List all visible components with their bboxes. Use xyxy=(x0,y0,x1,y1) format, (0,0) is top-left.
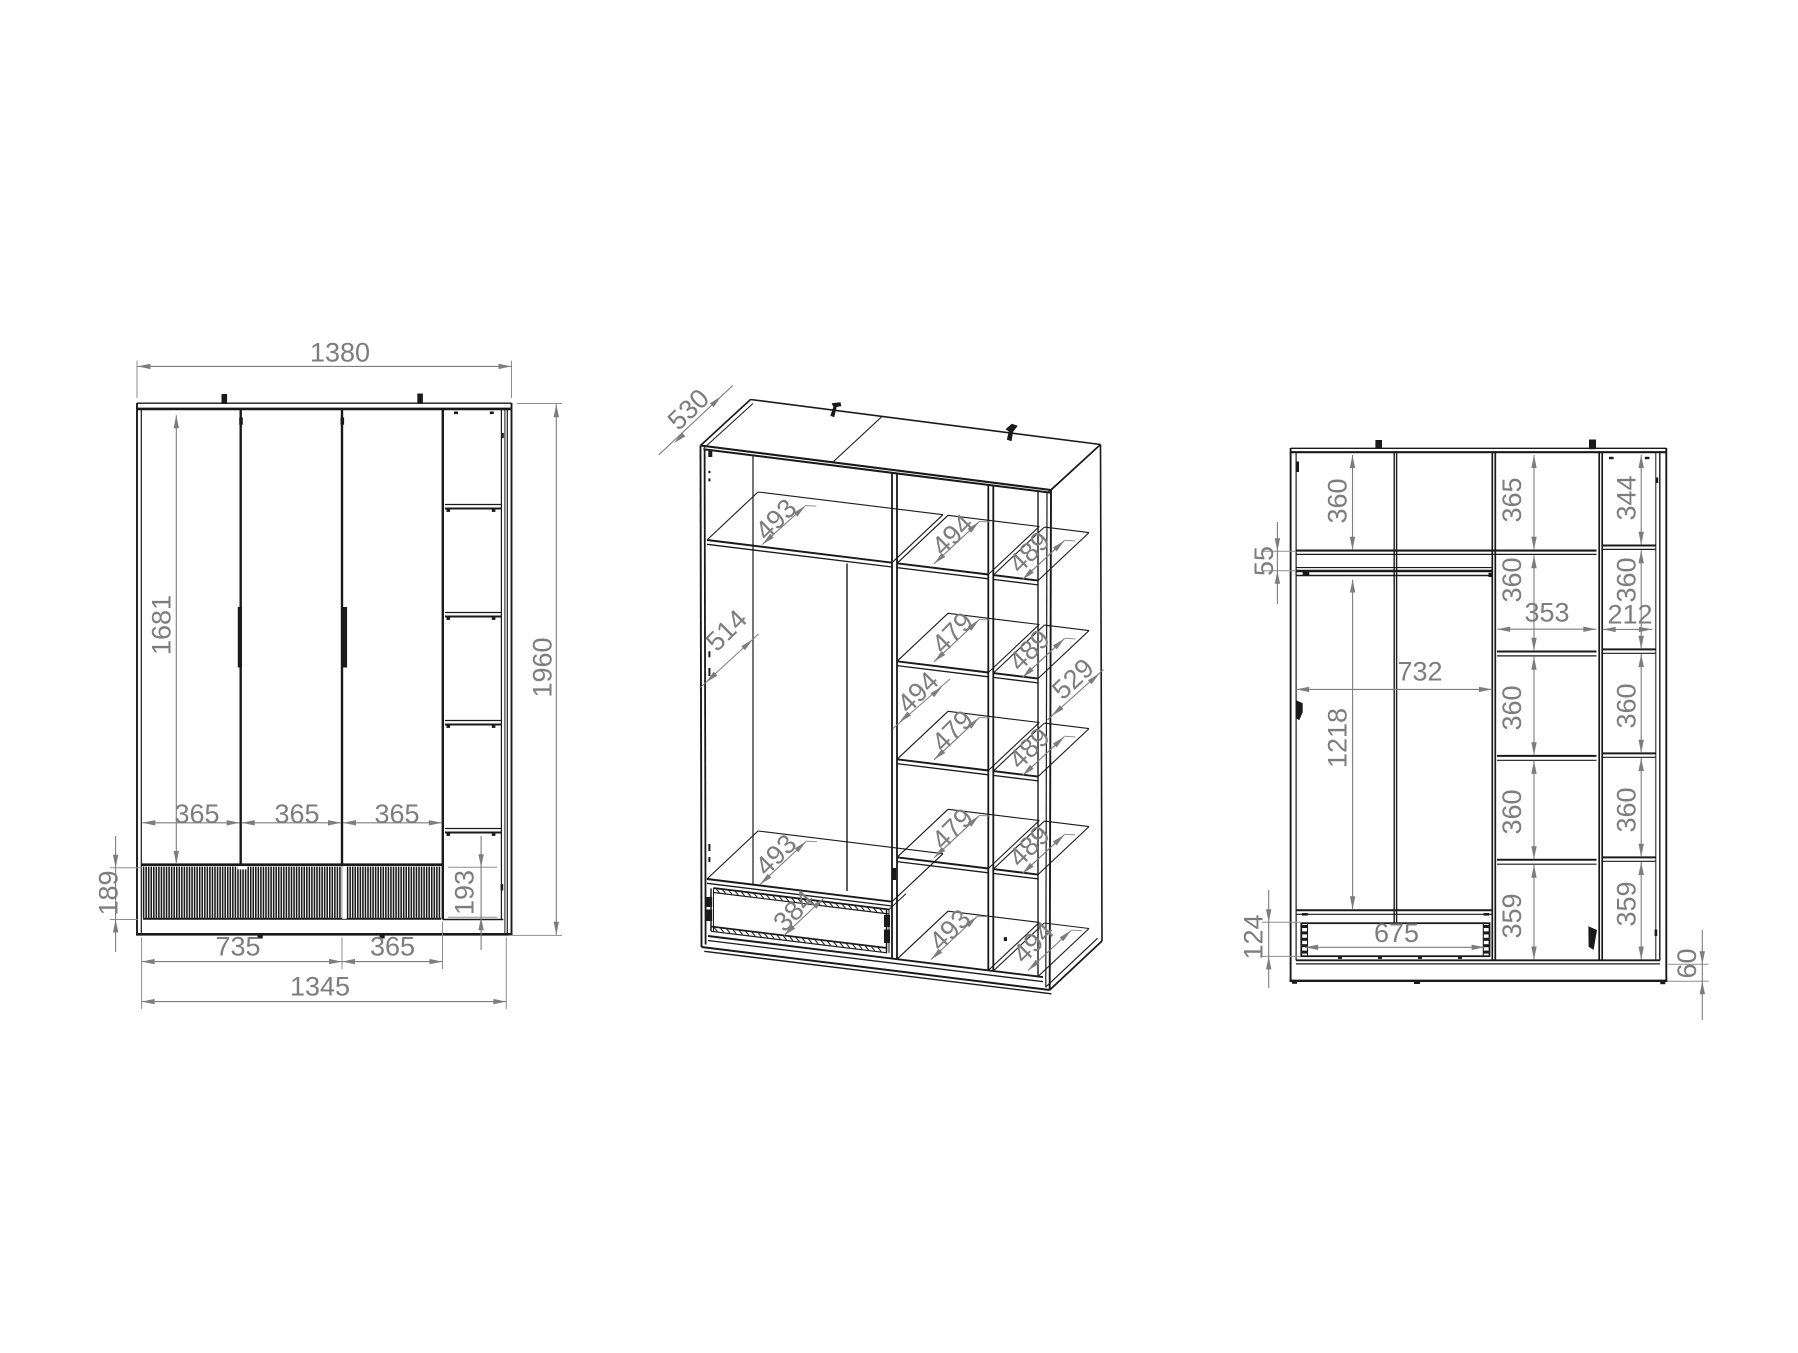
svg-text:360: 360 xyxy=(1612,683,1642,728)
svg-text:360: 360 xyxy=(1612,557,1642,602)
svg-text:1345: 1345 xyxy=(290,972,350,1002)
svg-text:359: 359 xyxy=(1497,893,1527,938)
svg-text:732: 732 xyxy=(1397,657,1442,687)
svg-text:344: 344 xyxy=(1612,475,1642,520)
svg-text:193: 193 xyxy=(450,870,480,915)
svg-text:365: 365 xyxy=(1497,477,1527,522)
svg-text:1380: 1380 xyxy=(310,338,370,368)
svg-text:353: 353 xyxy=(1524,597,1569,627)
svg-text:1960: 1960 xyxy=(528,637,558,697)
svg-text:360: 360 xyxy=(1323,478,1353,523)
svg-text:365: 365 xyxy=(374,799,419,829)
svg-text:675: 675 xyxy=(1374,918,1419,948)
svg-text:360: 360 xyxy=(1497,789,1527,834)
svg-text:365: 365 xyxy=(370,932,415,962)
svg-text:360: 360 xyxy=(1497,557,1527,602)
svg-text:212: 212 xyxy=(1607,600,1652,630)
svg-text:365: 365 xyxy=(174,799,219,829)
svg-text:360: 360 xyxy=(1497,685,1527,730)
svg-text:60: 60 xyxy=(1672,948,1702,978)
svg-text:1681: 1681 xyxy=(147,595,177,655)
svg-text:55: 55 xyxy=(1249,546,1279,576)
svg-text:360: 360 xyxy=(1612,787,1642,832)
svg-text:1218: 1218 xyxy=(1323,708,1353,768)
svg-text:124: 124 xyxy=(1239,914,1269,959)
svg-text:735: 735 xyxy=(215,932,260,962)
svg-text:365: 365 xyxy=(274,799,319,829)
svg-text:359: 359 xyxy=(1612,881,1642,926)
svg-text:189: 189 xyxy=(94,870,124,915)
